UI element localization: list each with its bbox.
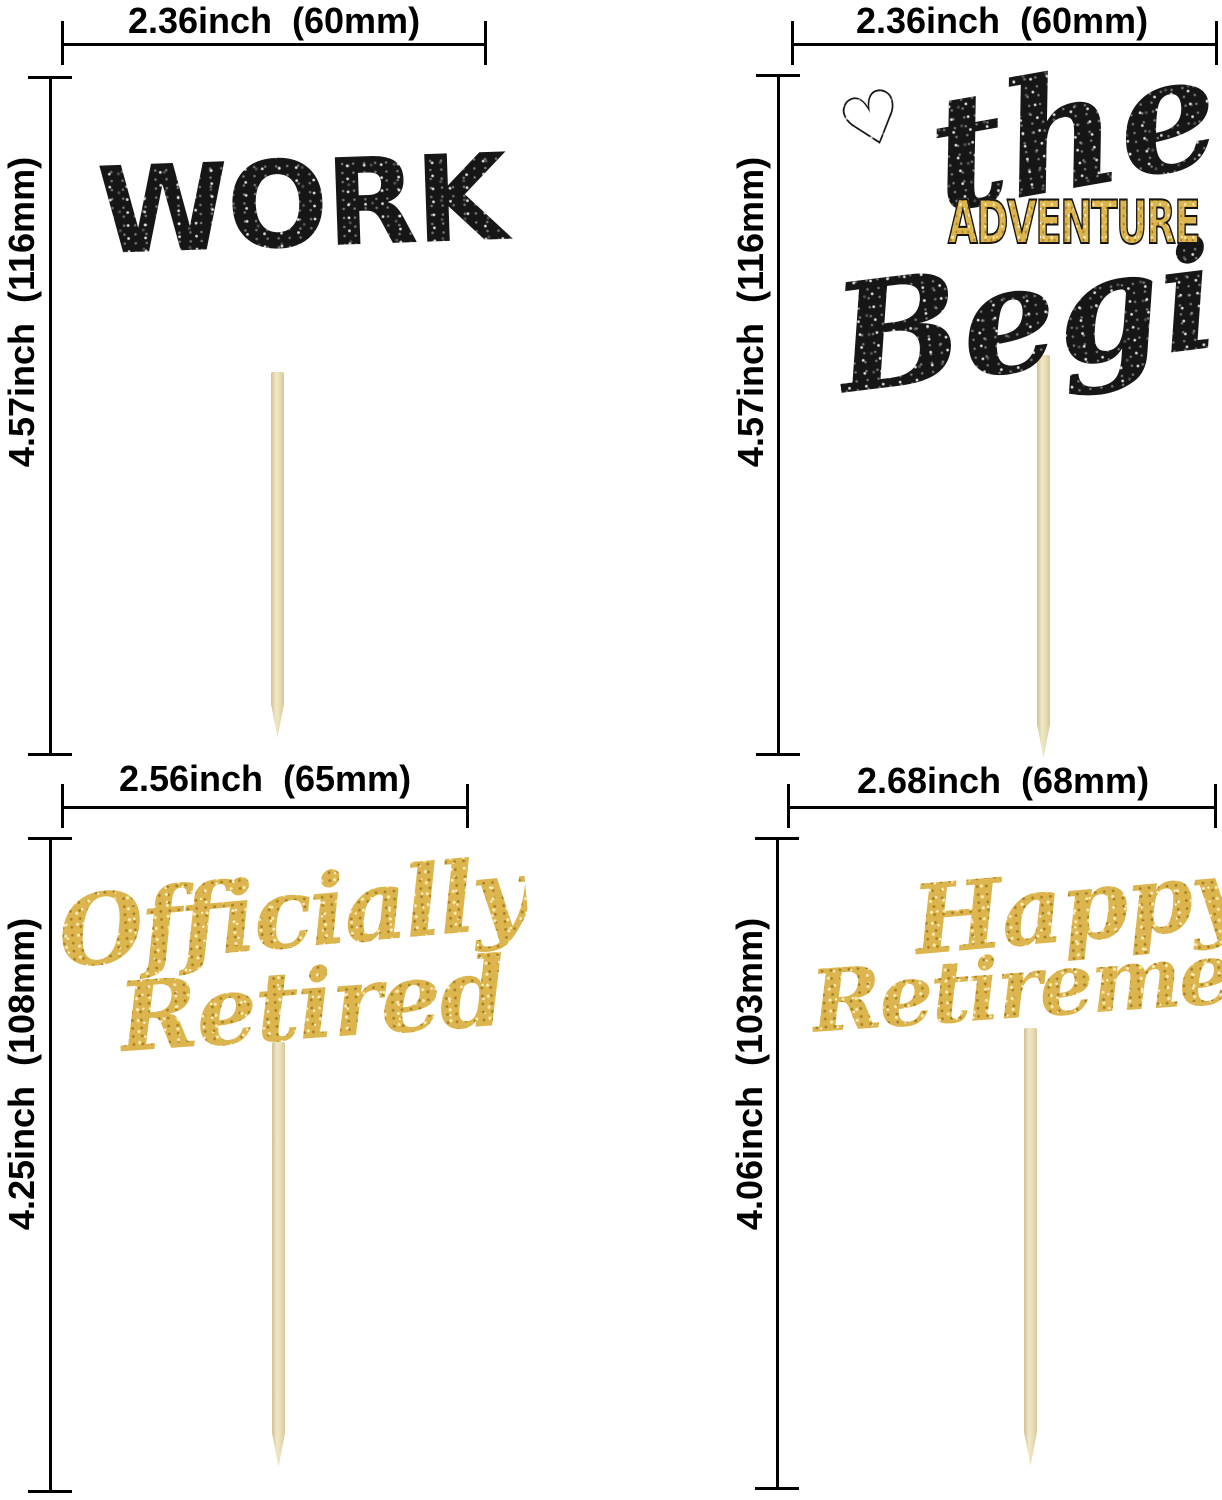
width-dimension-line — [62, 806, 469, 809]
topper-text-line: ADVENTURE — [948, 188, 1199, 258]
toothpick-stick — [1024, 1028, 1037, 1466]
height-dimension-line — [49, 838, 52, 1493]
width-dimension-line — [788, 806, 1217, 809]
dimension-tick — [755, 837, 799, 840]
height-dimension-label: 4.57inch (116mm) — [730, 157, 772, 467]
dimension-tick — [756, 753, 800, 756]
dimension-tick — [756, 74, 800, 77]
height-dimension-label-box: 4.57inch (116mm) — [0, 162, 44, 462]
dimension-tick — [755, 1487, 799, 1490]
topper-text-line: Retirement — [807, 916, 1222, 1053]
cake-topper-dimension-image: 2.36inch (60mm) 4.57inch (116mm) NO WORK… — [0, 0, 1222, 1500]
height-dimension-label-box: 4.06inch (103mm) — [728, 924, 772, 1224]
toothpick-stick — [1037, 355, 1050, 758]
height-dimension-label-box: 4.57inch (116mm) — [729, 162, 773, 462]
dimension-tick — [61, 784, 64, 828]
width-dimension-label: 2.56inch (65mm) — [65, 758, 465, 800]
dimension-tick — [1215, 21, 1218, 65]
dimension-tick — [28, 76, 72, 79]
dimension-tick — [28, 837, 72, 840]
width-dimension-label: 2.68inch (68mm) — [803, 760, 1203, 802]
height-dimension-label-box: 4.25inch (108mm) — [0, 924, 44, 1224]
toothpick-stick — [271, 372, 284, 738]
dimension-tick — [28, 753, 72, 756]
height-dimension-line — [776, 838, 779, 1490]
topper-text-line: ZONE — [86, 249, 523, 376]
dimension-tick — [28, 1490, 72, 1493]
height-dimension-line — [49, 77, 52, 755]
height-dimension-label: 4.25inch (108mm) — [1, 918, 43, 1230]
heart-icon: ♡ — [829, 70, 916, 170]
dimension-tick — [1214, 784, 1217, 828]
height-dimension-line — [777, 75, 780, 755]
dimension-tick — [61, 21, 64, 65]
dimension-tick — [787, 784, 790, 828]
height-dimension-label: 4.57inch (116mm) — [1, 157, 43, 467]
dimension-tick — [466, 784, 469, 828]
toothpick-stick — [272, 1042, 285, 1467]
topper-no-work-zone: NO WORK ZONE — [80, 37, 523, 372]
height-dimension-label: 4.06inch (103mm) — [729, 918, 771, 1230]
dimension-tick — [791, 21, 794, 65]
